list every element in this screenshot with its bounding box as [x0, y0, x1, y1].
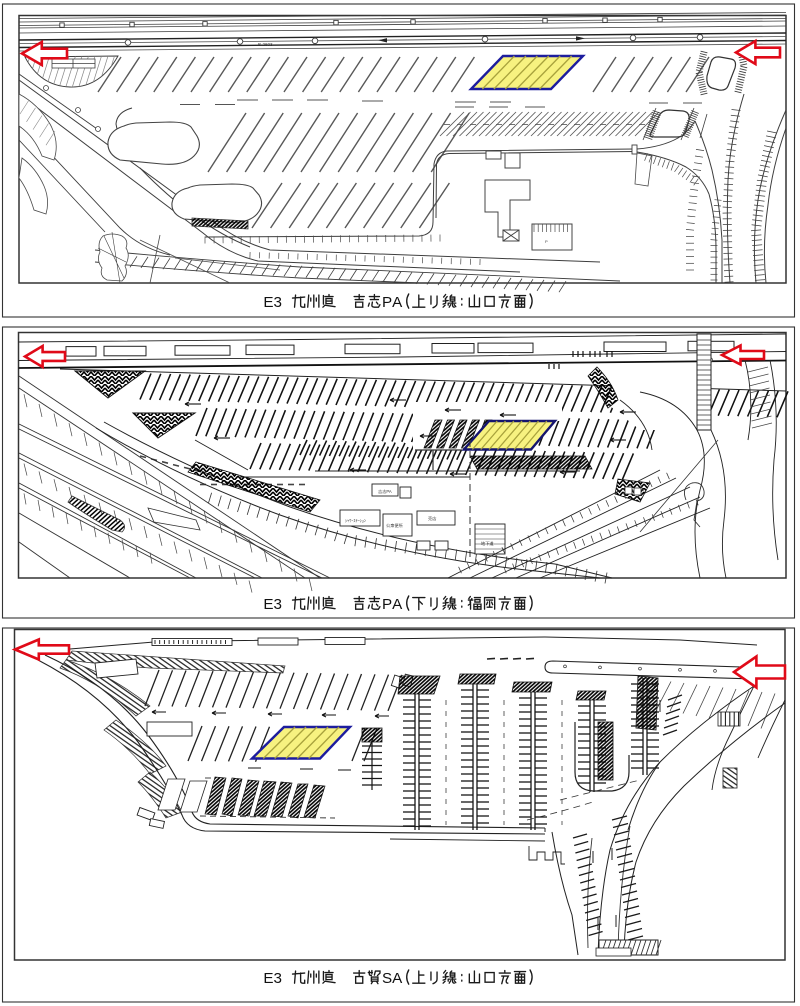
- svg-text:E: E: [263, 970, 273, 987]
- svg-text:3: 3: [274, 970, 282, 987]
- svg-text:E: E: [263, 294, 273, 311]
- svg-text:公衆便所: 公衆便所: [386, 522, 403, 529]
- svg-text:地下道: 地下道: [481, 540, 494, 547]
- svg-text:A: A: [392, 596, 403, 613]
- svg-text:3: 3: [274, 596, 282, 613]
- svg-text:吉志PA: 吉志PA: [378, 488, 392, 495]
- svg-text:A: A: [392, 294, 403, 311]
- svg-text:P: P: [545, 239, 548, 244]
- svg-text:A: A: [392, 970, 403, 987]
- svg-text:3: 3: [274, 294, 282, 311]
- svg-text:売店: 売店: [428, 515, 436, 522]
- svg-text:P: P: [382, 294, 392, 311]
- svg-text:P: P: [382, 596, 392, 613]
- svg-text:S: S: [382, 970, 392, 987]
- svg-text:E: E: [263, 596, 273, 613]
- svg-text:B-2603: B-2603: [258, 42, 273, 47]
